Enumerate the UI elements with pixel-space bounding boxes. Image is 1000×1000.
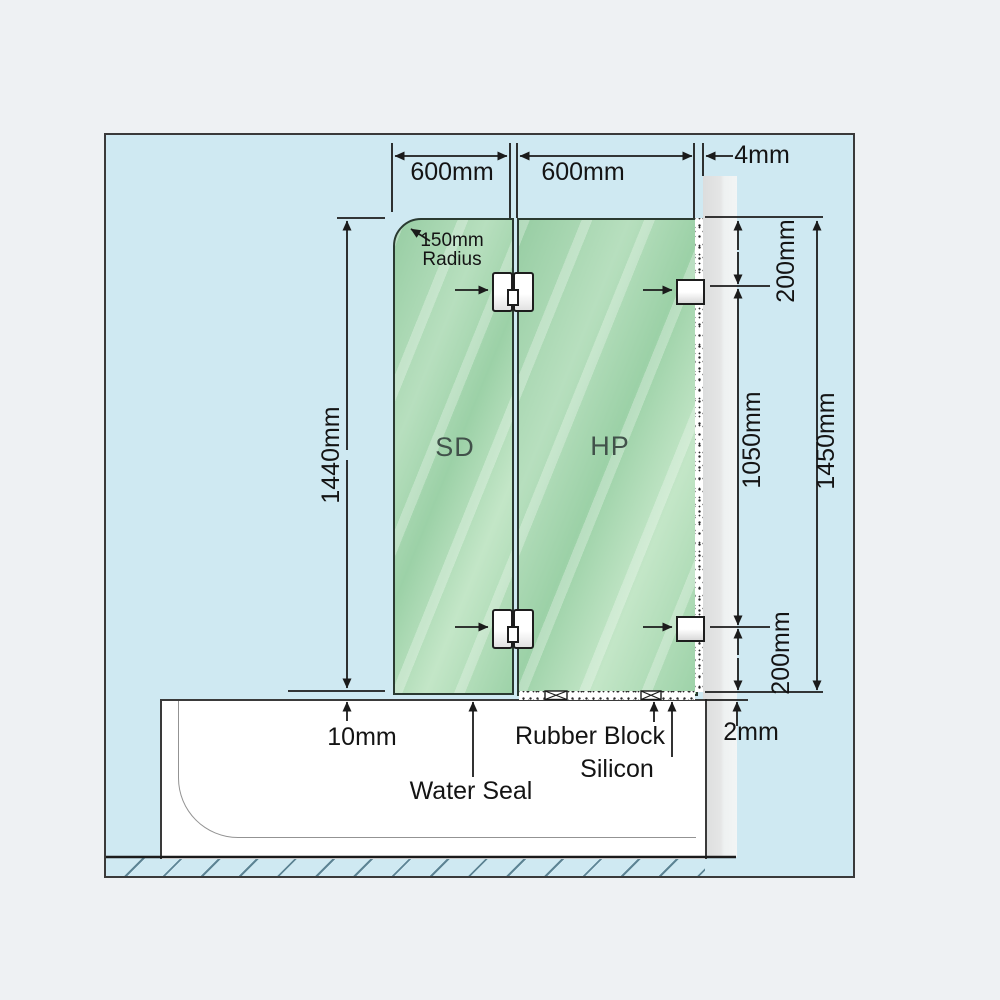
dim-hp-height: 1450mm xyxy=(813,381,839,501)
dim-bracket-spacing: 1050mm xyxy=(739,380,765,500)
callout-rubber-block: Rubber Block xyxy=(490,723,690,749)
dim-sd-width: 600mm xyxy=(392,159,512,185)
dim-sd-bottom-gap: 10mm xyxy=(312,724,412,750)
callout-silicon: Silicon xyxy=(537,756,697,782)
panel-label-sd: SD xyxy=(415,434,495,460)
callout-water-seal: Water Seal xyxy=(391,778,551,804)
panel-label-hp: HP xyxy=(570,433,650,459)
dim-hp-bottom-gap: 2mm xyxy=(711,719,791,745)
dim-top-offset: 200mm xyxy=(773,211,799,311)
dim-corner-radius: 150mm Radius xyxy=(392,231,512,269)
dim-sd-height: 1440mm xyxy=(318,385,344,525)
dim-wall-gap: 4mm xyxy=(722,142,802,168)
diagram-canvas: 600mm 600mm 4mm 150mm Radius 1440mm 200m… xyxy=(0,0,1000,1000)
dimension-lines xyxy=(0,0,1000,1000)
dim-bottom-offset: 200mm xyxy=(768,603,794,703)
dim-hp-width: 600mm xyxy=(523,159,643,185)
